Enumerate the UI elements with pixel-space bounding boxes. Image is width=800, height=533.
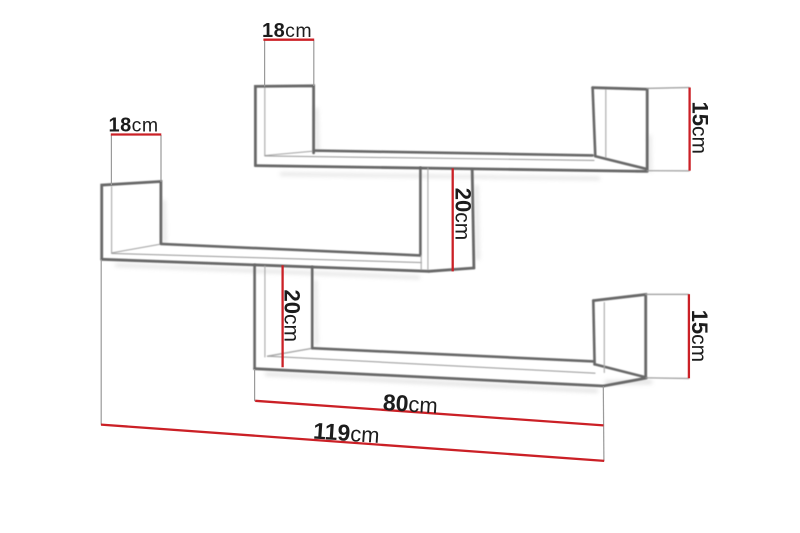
svg-text:119cm: 119cm [312,418,380,448]
svg-text:18cm: 18cm [109,115,159,137]
svg-text:20cm: 20cm [280,290,305,342]
svg-text:20cm: 20cm [450,188,475,240]
svg-text:15cm: 15cm [687,102,712,154]
svg-text:80cm: 80cm [382,389,438,418]
svg-text:15cm: 15cm [687,310,712,362]
svg-text:18cm: 18cm [262,20,312,42]
